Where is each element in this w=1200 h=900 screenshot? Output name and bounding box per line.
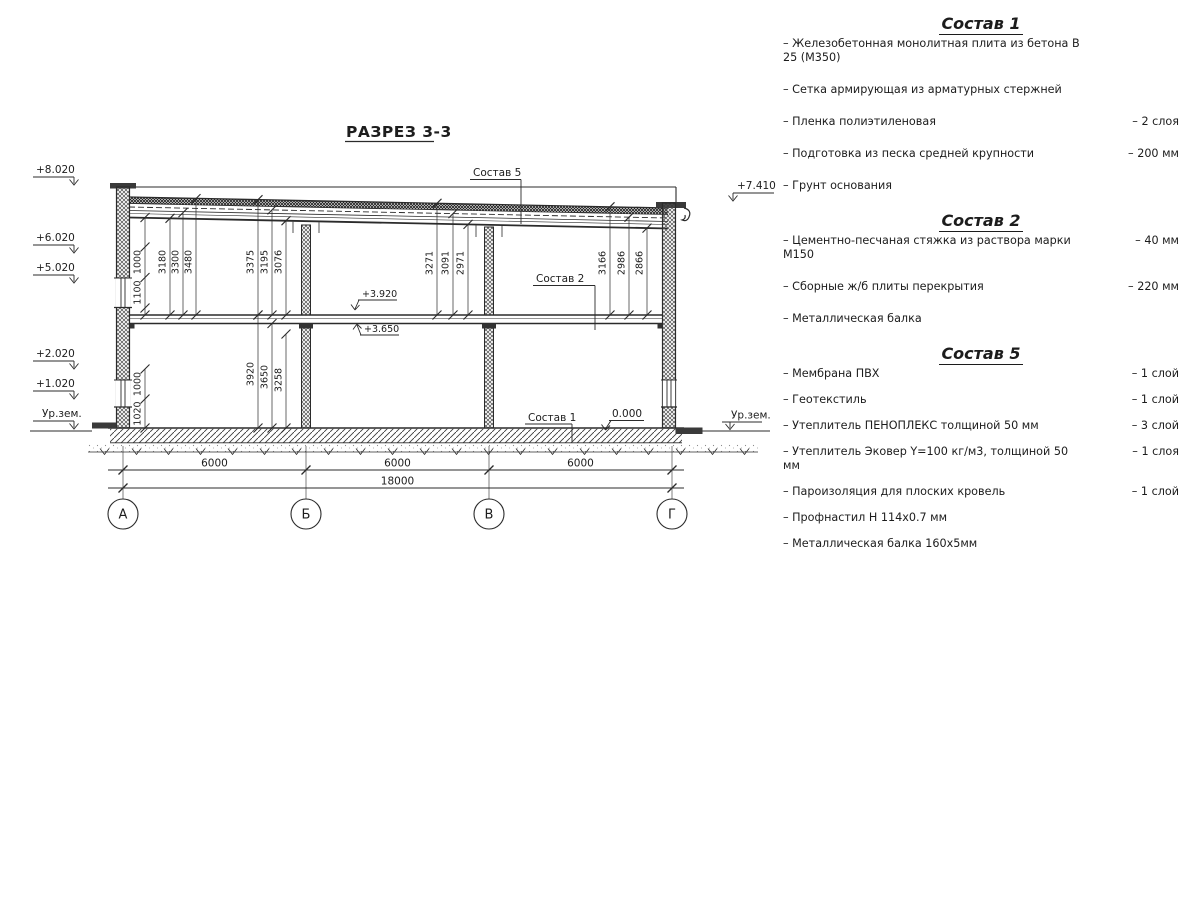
dim-v-upper-2: 3091 (441, 251, 452, 275)
elev-1020: +1.020 (36, 378, 75, 390)
axis-label-v: В (485, 508, 494, 523)
column-v-plate (482, 324, 496, 329)
composition-section-5: Состав 5 – Мембрана ПВХ– 1 слой – Геотек… (783, 344, 1179, 551)
total-dim: 18000 (381, 476, 414, 488)
dim-g-upper-2: 2986 (617, 251, 628, 275)
column-v-upper (485, 227, 494, 315)
floor-slab-2 (129, 315, 663, 324)
span-dim-3: 6000 (567, 458, 594, 470)
elevation-marks-right: +7.410 Ур.зем. (722, 180, 776, 430)
span-dim-1: 6000 (201, 458, 228, 470)
column-b-plate (299, 324, 313, 329)
dim-b-upper-3: 3076 (274, 250, 285, 274)
column-v-lower (485, 324, 494, 429)
elev-6020: +6.020 (36, 232, 75, 244)
dim-wall-upper-1: 1000 (133, 250, 144, 274)
list-item: – Сетка армирующая из арматурных стержне… (783, 83, 1179, 97)
list-item: – Утеплитель ПЕНОПЛЕКС толщиной 50 мм– 3… (783, 419, 1179, 433)
list-item: – Металлическая балка (783, 312, 1179, 326)
section-5-heading: Состав 5 (783, 344, 1179, 363)
axis-label-b: Б (302, 508, 311, 523)
elev-3920: +3.920 (362, 289, 397, 300)
section-2-heading: Состав 2 (783, 211, 1179, 230)
dim-bay1-1: 3180 (158, 250, 169, 274)
dim-wall-lower-1: 1000 (133, 372, 144, 396)
dim-b-upper-1: 3375 (246, 250, 257, 274)
column-b-lower (302, 324, 311, 429)
dim-wall-lower-2: 1020 (133, 401, 144, 425)
dimensions-vertical: 1000 1100 3180 3300 3480 3375 3195 3076 … (133, 194, 652, 432)
leader-sostav2: Состав 2 (536, 273, 584, 285)
dim-g-upper-1: 3166 (598, 251, 609, 275)
dim-b-upper-2: 3195 (260, 250, 271, 274)
list-item: – Пароизоляция для плоских кровель– 1 сл… (783, 485, 1179, 499)
list-item: – Мембрана ПВХ– 1 слой (783, 367, 1179, 381)
column-b-upper (302, 225, 311, 315)
elev-3650: +3.650 (364, 324, 399, 335)
elevation-marks-left: +8.020 +6.020 +5.020 +2.020 +1.020 Ур.зе… (33, 164, 82, 429)
drawing-title: РАЗРЕЗ 3-3 (346, 123, 452, 141)
composition-section-1: Состав 1 – Железобетонная монолитная пли… (783, 14, 1179, 193)
span-dim-2: 6000 (384, 458, 411, 470)
list-item: – Геотекстиль– 1 слой (783, 393, 1179, 407)
dim-b-lower-2: 3650 (260, 365, 271, 389)
blind-area-right (676, 428, 703, 435)
sand-preparation (88, 443, 758, 452)
dim-g-upper-3: 2866 (635, 251, 646, 275)
composition-section-2: Состав 2 – Цементно-песчаная стяжка из р… (783, 211, 1179, 326)
foundation-ground (30, 423, 770, 455)
elev-5020: +5.020 (36, 262, 75, 274)
composition-panel: Состав 1 – Железобетонная монолитная пли… (783, 14, 1179, 563)
window-left-upper (114, 278, 132, 308)
elev-ground-right: Ур.зем. (731, 410, 771, 422)
list-item: – Металлическая балка 160х5мм (783, 537, 1179, 551)
elev-8020: +8.020 (36, 164, 75, 176)
list-item: – Сборные ж/б плиты перекрытия– 220 мм (783, 280, 1179, 294)
leader-sostav1: Состав 1 (528, 412, 576, 424)
roof (110, 183, 690, 237)
floor-slab-hatch (110, 429, 682, 443)
window-left-lower (114, 380, 132, 407)
dim-b-lower-3: 3258 (274, 368, 285, 392)
dim-v-upper-1: 3271 (425, 251, 436, 275)
elev-2020: +2.020 (36, 348, 75, 360)
dim-bay1-2: 3300 (171, 250, 182, 274)
elev-0000: 0.000 (612, 408, 642, 420)
list-item: – Подготовка из песка средней крупности–… (783, 147, 1179, 161)
list-item: – Железобетонная монолитная плита из бет… (783, 37, 1179, 65)
blind-area-left (92, 423, 117, 429)
list-item: – Грунт основания (783, 179, 1179, 193)
dim-wall-upper-2: 1100 (133, 280, 144, 304)
slab-level-marks: +3.920 +3.650 0.000 (351, 289, 644, 430)
list-item: – Профнастил Н 114х0.7 мм (783, 511, 1179, 525)
leader-sostav5: Состав 5 (473, 167, 521, 179)
dim-v-upper-3: 2971 (456, 251, 467, 275)
section-1-heading: Состав 1 (783, 14, 1179, 33)
window-right-lower (661, 380, 677, 407)
axis-label-g: Г (668, 508, 676, 523)
section-drawing-sheet: РАЗРЕЗ 3-3 (0, 0, 1200, 900)
dim-bay1-3: 3480 (184, 250, 195, 274)
dimensions-horizontal: 6000 6000 6000 18000 (108, 458, 684, 493)
dim-b-lower-1: 3920 (246, 362, 257, 386)
list-item: – Цементно-песчаная стяжка из раствора м… (783, 234, 1179, 262)
elev-7410: +7.410 (737, 180, 776, 192)
list-item: – Пленка полиэтиленовая– 2 слоя (783, 115, 1179, 129)
roof-gutter-curl (682, 208, 690, 221)
axis-label-a: А (119, 508, 128, 523)
list-item: – Утеплитель Эковер Y=100 кг/м3, толщино… (783, 445, 1179, 473)
elev-ground-left: Ур.зем. (42, 408, 82, 420)
